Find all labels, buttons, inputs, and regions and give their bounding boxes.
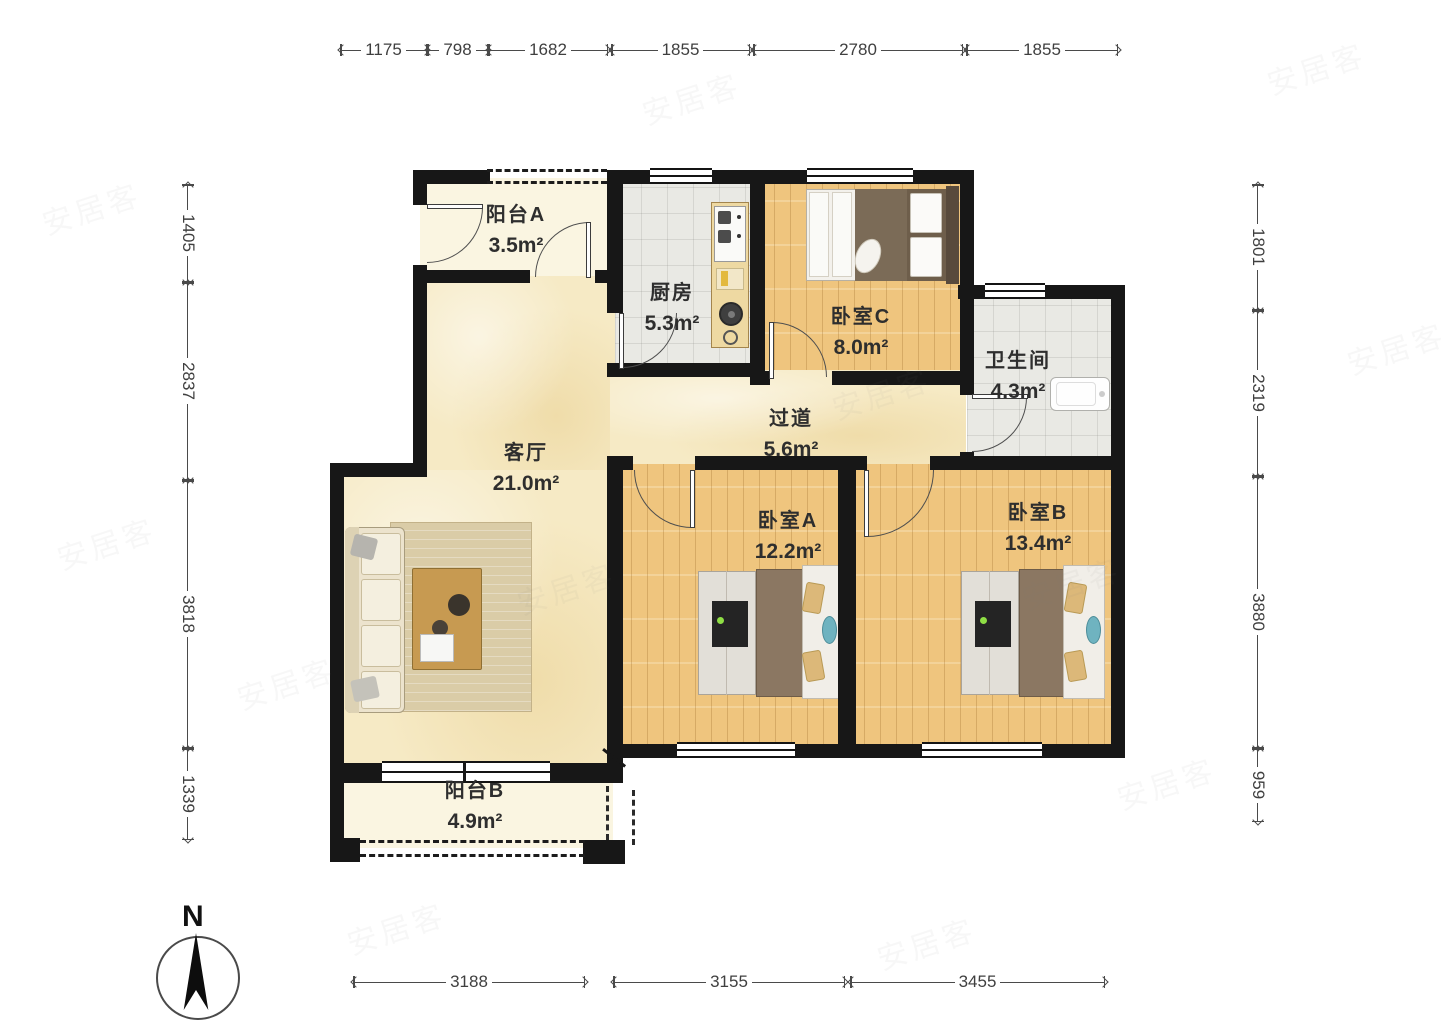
tv-b-light	[980, 617, 987, 624]
dimension-right-1: 2319	[1248, 310, 1268, 476]
balcony-b-open-edge	[360, 840, 585, 857]
room-name: 客厅	[493, 436, 560, 465]
compass-north-label: N	[182, 900, 204, 934]
bed-c-pillow	[910, 237, 942, 277]
floor-plan-canvas: N 阳台A3.5m²厨房5.3m²卧室C8.0m²卫生间4.3m²过道5.6m²…	[0, 0, 1448, 1024]
bed-a-lamp	[822, 616, 837, 644]
balcony-b-open-side	[606, 786, 615, 840]
watermark: 安居客	[51, 505, 162, 578]
dimension-top-1: 798	[427, 40, 488, 60]
room-label-bedroom-a: 卧室A12.2m²	[755, 504, 822, 564]
table-decor	[448, 594, 470, 616]
bedroom-b-window	[922, 742, 1042, 758]
room-label-living-room: 客厅21.0m²	[493, 436, 560, 496]
tv-a	[712, 601, 748, 647]
bed-b-blanket	[1019, 569, 1065, 697]
room-label-hallway: 过道5.6m²	[764, 402, 819, 462]
stove-burner	[718, 211, 731, 224]
bedroom-a-window	[677, 742, 795, 758]
faucet	[723, 330, 738, 345]
room-area: 5.3m²	[645, 312, 700, 336]
bathroom-window	[985, 283, 1045, 299]
bed-a-blanket	[756, 569, 804, 697]
bed-b-lamp	[1086, 616, 1101, 644]
bed-c-pillow	[910, 193, 942, 233]
dimension-right-2: 3880	[1248, 476, 1268, 748]
watermark: 安居客	[1111, 745, 1222, 818]
room-name: 过道	[764, 402, 819, 431]
room-label-balcony-b: 阳台B4.9m²	[445, 774, 505, 834]
watermark: 安居客	[636, 60, 747, 133]
room-area: 21.0m²	[493, 472, 560, 496]
room-name: 卧室A	[755, 504, 822, 533]
bathtub-drain	[1099, 391, 1105, 397]
stove-knob	[737, 215, 741, 219]
room-name: 卧室C	[831, 300, 891, 329]
stove-burner	[718, 230, 731, 243]
watermark: 安居客	[341, 890, 452, 963]
dimension-left-3: 1339	[178, 748, 198, 840]
kitchen-item	[721, 271, 728, 286]
dimension-top-0: 1175	[340, 40, 427, 60]
room-name: 卫生间	[985, 344, 1051, 373]
dimension-bottom-0: 3188	[353, 972, 585, 992]
room-label-bedroom-c: 卧室C8.0m²	[831, 300, 891, 360]
kitchen-window	[650, 168, 712, 184]
bed-c-sheet	[809, 192, 829, 277]
dimension-bottom-2: 3455	[850, 972, 1105, 992]
balcony-b-open-outer	[632, 790, 641, 845]
balcony-a-open-edge	[487, 169, 607, 184]
bathtub-inner	[1056, 382, 1096, 406]
room-area: 4.3m²	[985, 380, 1051, 404]
sink-drain	[728, 311, 735, 318]
room-area: 4.9m²	[445, 810, 505, 834]
tv-b	[975, 601, 1011, 647]
tv-a-light	[717, 617, 724, 624]
watermark: 安居客	[1261, 30, 1372, 103]
room-area: 5.6m²	[764, 438, 819, 462]
watermark: 安居客	[871, 905, 982, 978]
bedroom-c-window	[807, 168, 913, 184]
room-name: 厨房	[645, 276, 700, 305]
room-label-bedroom-b: 卧室B13.4m²	[1005, 496, 1072, 556]
sofa-cushion	[361, 579, 401, 621]
table-tray	[420, 634, 454, 662]
room-name: 阳台B	[445, 774, 505, 803]
room-area: 13.4m²	[1005, 532, 1072, 556]
bed-c-sheet	[832, 192, 852, 277]
room-area: 3.5m²	[486, 234, 546, 258]
dimension-left-0: 1405	[178, 184, 198, 282]
dimension-bottom-1: 3155	[613, 972, 845, 992]
dimension-top-3: 1855	[611, 40, 750, 60]
dimension-left-1: 2837	[178, 282, 198, 480]
watermark: 安居客	[1341, 310, 1448, 383]
watermark: 安居客	[231, 645, 342, 718]
room-name: 阳台A	[486, 198, 546, 227]
room-label-bathroom: 卫生间4.3m²	[985, 344, 1051, 404]
dimension-top-2: 1682	[488, 40, 608, 60]
room-label-kitchen: 厨房5.3m²	[645, 276, 700, 336]
watermark: 安居客	[36, 170, 147, 243]
room-area: 8.0m²	[831, 336, 891, 360]
dimension-right-3: 959	[1248, 748, 1268, 822]
dimension-top-4: 2780	[753, 40, 963, 60]
dimension-top-5: 1855	[966, 40, 1118, 60]
room-label-balcony-a: 阳台A3.5m²	[486, 198, 546, 258]
dimension-left-2: 3818	[178, 480, 198, 748]
sofa-cushion	[361, 625, 401, 667]
dimension-right-0: 1801	[1248, 184, 1268, 310]
room-area: 12.2m²	[755, 540, 822, 564]
room-name: 卧室B	[1005, 496, 1072, 525]
stove-knob	[737, 234, 741, 238]
bed-c-headboard	[946, 186, 959, 284]
